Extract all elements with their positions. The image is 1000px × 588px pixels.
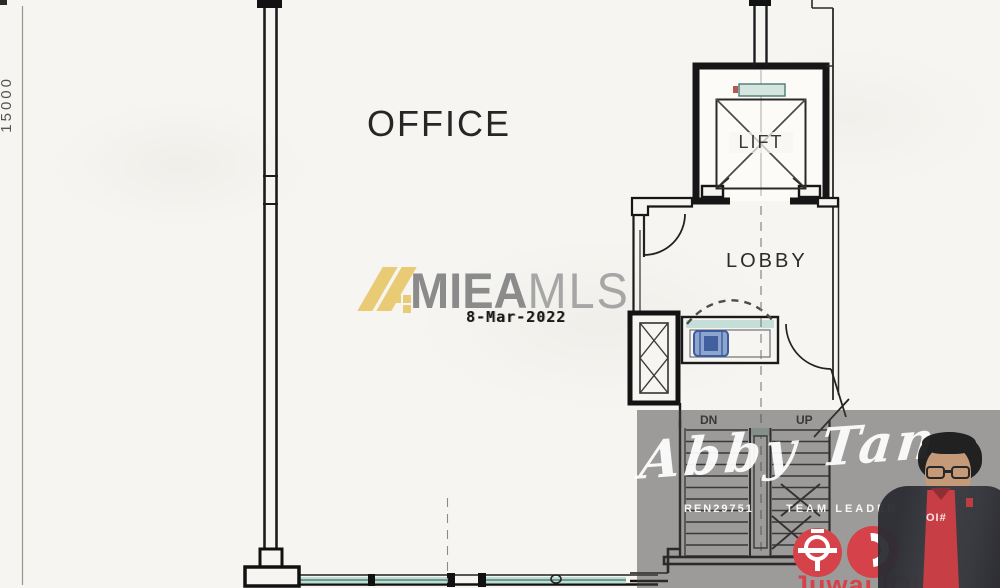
seal-bar xyxy=(798,548,837,553)
lift-label: LIFT xyxy=(729,132,793,153)
glasses-bridge xyxy=(944,470,952,473)
glasses-icon xyxy=(926,466,945,479)
agent-ren-number: REN29751 xyxy=(684,503,754,515)
photo-hair-fringe xyxy=(922,432,976,454)
shirt-print-text: OI# xyxy=(926,512,947,524)
mls-watermark: MIEAMLS 8-Mar-2022 xyxy=(348,258,658,332)
glasses-icon xyxy=(951,466,970,479)
dimension-text: 15000 xyxy=(0,76,15,133)
agent-photo: OI# xyxy=(862,424,1000,588)
lobby-right-door xyxy=(786,324,846,417)
lobby-label: LOBBY xyxy=(726,250,808,273)
floorplan-page: OFFICE LIFT LOBBY DN UP 15000 MIEAMLS 8-… xyxy=(0,0,1000,588)
mls-date-stamp: 8-Mar-2022 xyxy=(466,308,566,326)
pocket-square xyxy=(966,498,973,507)
bottom-window-wall xyxy=(245,567,658,587)
mls-logo-square-icon xyxy=(393,295,401,303)
office-room-label: OFFICE xyxy=(367,103,511,145)
seal-bar xyxy=(811,529,824,533)
photo-red-shirt xyxy=(923,490,959,588)
office-left-wall xyxy=(257,0,282,575)
lift-shaft xyxy=(696,0,826,201)
vanity-counter xyxy=(682,300,778,363)
